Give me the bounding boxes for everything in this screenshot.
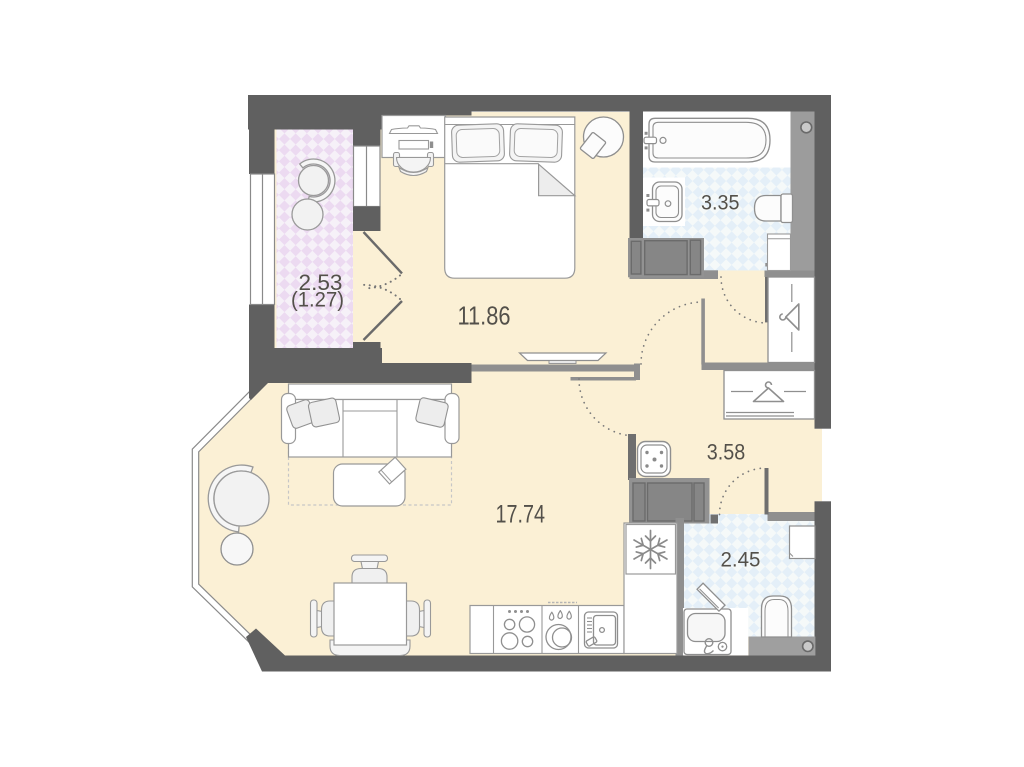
svg-text:3.35: 3.35 (701, 192, 740, 215)
svg-text:11.86: 11.86 (458, 303, 511, 331)
svg-text:17.74: 17.74 (496, 501, 546, 529)
svg-text:2.45: 2.45 (721, 548, 761, 572)
svg-text:3.58: 3.58 (707, 440, 746, 465)
svg-text:(1.27): (1.27) (291, 289, 344, 312)
